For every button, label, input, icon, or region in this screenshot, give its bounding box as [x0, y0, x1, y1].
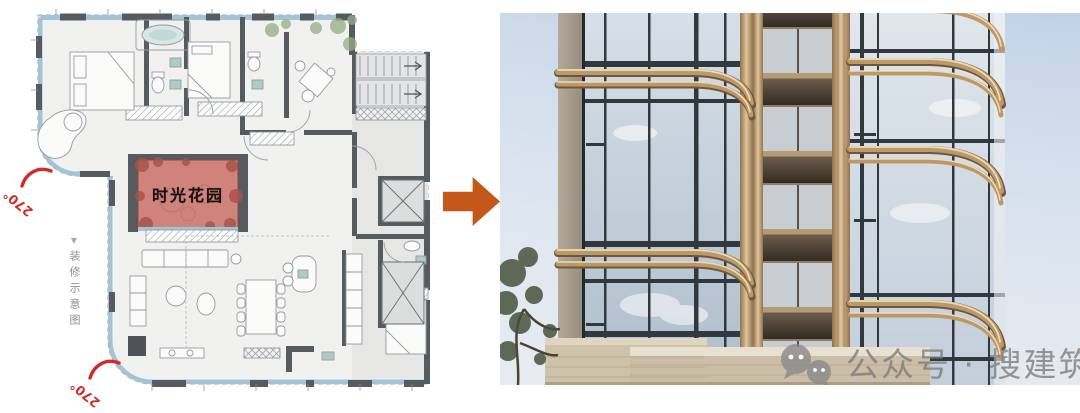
watermark-text: 公众号 · 搜建筑: [846, 344, 1080, 385]
triangle-down-icon: ▼: [62, 236, 86, 245]
watermark: 公众号 · 搜建筑: [778, 343, 1080, 385]
renovation-note: ▼ 装修示意图: [62, 236, 86, 334]
balcony-shaft: [753, 13, 850, 385]
floor-plan-drawing: [0, 0, 440, 413]
building-photo: 公众号 · 搜建筑: [500, 13, 1080, 385]
renovation-note-text: 装修示意图: [66, 250, 82, 330]
article-figure: 时光花园 ▼ 装修示意图 270° 270°: [0, 0, 1080, 413]
facade-rendering: [500, 13, 1080, 385]
arrow-right-icon: [443, 177, 500, 226]
wechat-icon: [778, 343, 836, 385]
floor-plan: [0, 0, 440, 413]
concrete-pillar: [558, 13, 582, 385]
